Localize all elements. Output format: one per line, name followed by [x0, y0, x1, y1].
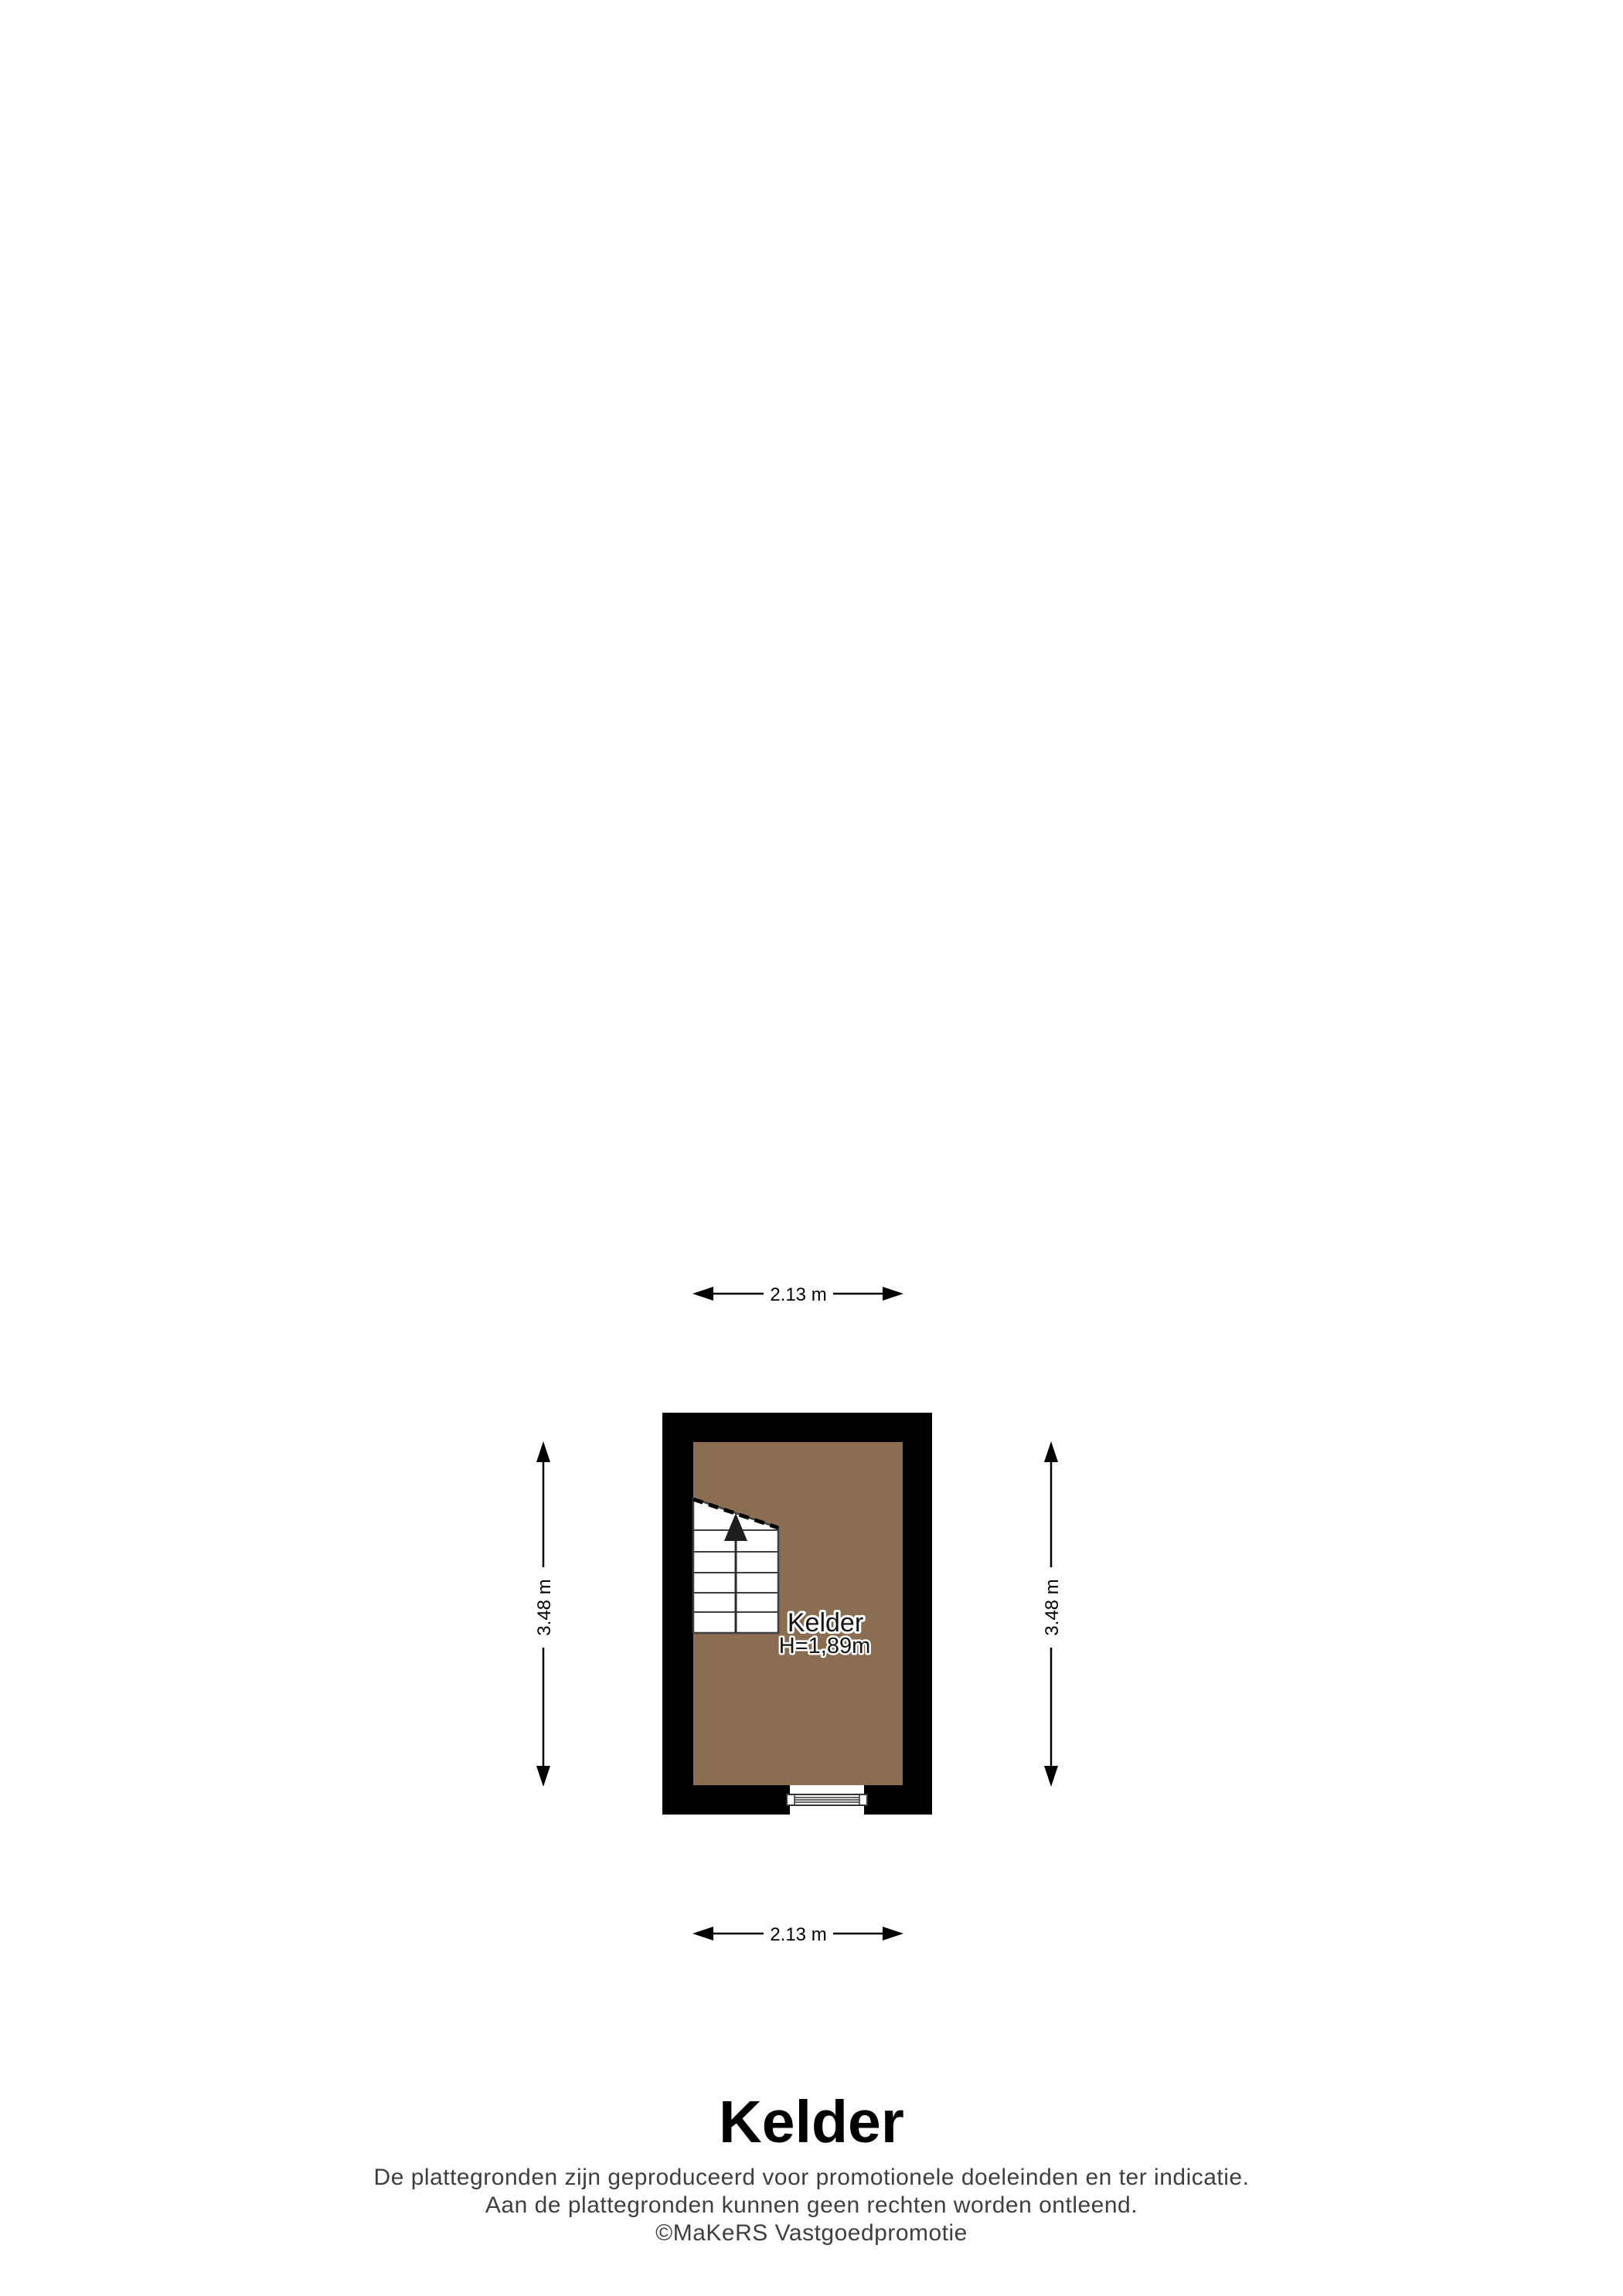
disclaimer-line: ©MaKeRS Vastgoedpromotie — [0, 2219, 1623, 2247]
arrowhead-right-icon — [883, 1927, 903, 1941]
dimension-bottom: 2.13 m — [692, 1924, 903, 1945]
dimension-top: 2.13 m — [692, 1284, 903, 1305]
arrowhead-right-icon — [883, 1287, 903, 1301]
floorplan: 2.13 m 3.48 m 3.48 m — [0, 0, 1623, 2296]
arrowhead-down-icon — [536, 1766, 550, 1787]
room-height-label: H=1,89m — [779, 1634, 870, 1658]
disclaimer-line: Aan de plattegronden kunnen geen rechten… — [0, 2192, 1623, 2219]
dimension-right: 3.48 m — [1042, 1441, 1063, 1787]
arrowhead-down-icon — [1044, 1766, 1058, 1787]
dimension-top-label: 2.13 m — [770, 1284, 826, 1305]
window — [787, 1785, 867, 1815]
floor-title: Kelder — [0, 2093, 1623, 2152]
dimension-left-label: 3.48 m — [534, 1579, 555, 1635]
disclaimer-line: De plattegronden zijn geproduceerd voor … — [0, 2164, 1623, 2192]
dimension-right-label: 3.48 m — [1042, 1579, 1063, 1635]
disclaimer: De plattegronden zijn geproduceerd voor … — [0, 2164, 1623, 2247]
dimension-left: 3.48 m — [534, 1441, 555, 1787]
dimension-bottom-label: 2.13 m — [770, 1924, 826, 1945]
page: 2.13 m 3.48 m 3.48 m — [0, 0, 1623, 2296]
